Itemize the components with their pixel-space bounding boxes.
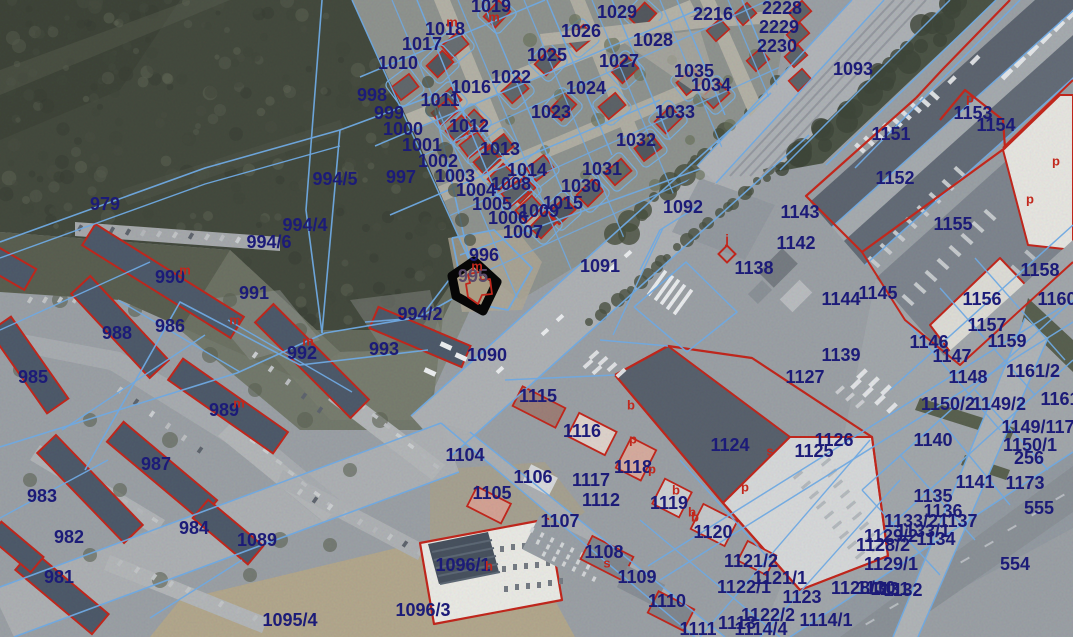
svg-text:998: 998 [357,85,387,105]
svg-text:1112: 1112 [582,490,620,510]
svg-text:981: 981 [44,567,74,587]
svg-text:1118: 1118 [614,457,652,477]
svg-text:1116: 1116 [563,421,601,441]
svg-text:1142: 1142 [776,233,815,253]
svg-text:1129/1: 1129/1 [864,554,918,574]
svg-text:1096/1: 1096/1 [435,555,490,575]
svg-text:555: 555 [1024,498,1054,518]
svg-text:1149/117: 1149/117 [1001,417,1073,437]
svg-text:1119: 1119 [650,493,688,513]
svg-text:2216: 2216 [693,4,733,24]
svg-text:988: 988 [102,323,132,343]
svg-text:2230: 2230 [757,36,797,56]
svg-text:1124: 1124 [710,435,749,455]
svg-text:p: p [741,479,749,494]
svg-text:h: h [485,558,493,573]
svg-text:1152: 1152 [875,168,914,188]
svg-text:1092: 1092 [663,197,703,217]
svg-text:1028: 1028 [633,30,673,50]
svg-text:j: j [724,231,729,246]
svg-text:1091: 1091 [580,256,620,276]
svg-text:p: p [1052,153,1060,168]
svg-text:983: 983 [27,486,57,506]
svg-text:1161: 1161 [1040,389,1073,409]
svg-text:1093: 1093 [833,59,873,79]
svg-text:m: m [229,312,241,327]
svg-text:1016: 1016 [451,77,491,97]
svg-text:1140: 1140 [913,430,952,450]
svg-text:1156: 1156 [962,289,1001,309]
svg-text:1143: 1143 [780,202,819,222]
svg-text:1111: 1111 [679,619,716,637]
svg-text:987: 987 [141,454,171,474]
svg-text:1104: 1104 [445,445,484,465]
svg-text:1132: 1132 [883,580,922,600]
svg-text:1033: 1033 [655,102,695,122]
svg-text:m: m [488,9,500,24]
svg-text:1089: 1089 [237,530,277,550]
svg-text:1134: 1134 [916,529,955,549]
svg-text:m: m [302,333,314,348]
svg-text:1007: 1007 [503,222,543,242]
svg-text:1032: 1032 [616,130,656,150]
svg-text:1122/1: 1122/1 [717,577,771,597]
svg-text:985: 985 [18,367,48,387]
svg-text:1155: 1155 [933,214,972,234]
svg-text:1029: 1029 [597,2,637,22]
svg-text:1013: 1013 [480,139,520,159]
svg-text:994/6: 994/6 [246,232,291,252]
svg-text:1017: 1017 [402,34,442,54]
svg-text:1010: 1010 [378,53,418,73]
svg-text:979: 979 [90,194,120,214]
svg-text:1027: 1027 [599,51,639,71]
svg-text:1110: 1110 [648,591,686,611]
svg-text:984: 984 [179,518,209,538]
svg-text:994/5: 994/5 [312,169,357,189]
svg-text:1022: 1022 [491,67,531,87]
svg-text:m: m [471,258,483,273]
svg-text:1024: 1024 [566,78,606,98]
svg-text:1160: 1160 [1037,289,1073,309]
svg-text:m: m [233,395,245,410]
svg-text:1109: 1109 [617,567,656,587]
svg-text:1095/4: 1095/4 [262,610,317,630]
svg-text:p: p [1026,191,1034,206]
svg-text:1012: 1012 [449,116,489,136]
svg-text:1025: 1025 [527,45,567,65]
svg-text:1144: 1144 [821,289,860,309]
svg-text:1159: 1159 [987,331,1026,351]
svg-text:1115: 1115 [519,386,557,406]
svg-text:256: 256 [1014,448,1044,468]
svg-text:1034: 1034 [691,75,731,95]
svg-text:b: b [672,482,680,497]
svg-text:1105: 1105 [472,483,511,503]
svg-text:1158: 1158 [1020,260,1059,280]
svg-text:1126: 1126 [814,430,853,450]
svg-text:2229: 2229 [759,17,799,37]
svg-text:1127: 1127 [785,367,824,387]
svg-text:1117: 1117 [572,470,610,490]
svg-text:1096/3: 1096/3 [395,600,450,620]
svg-text:s: s [766,443,773,458]
svg-text:p: p [966,90,974,105]
svg-text:997: 997 [386,167,416,187]
svg-text:m: m [179,262,191,277]
svg-text:1008: 1008 [491,174,531,194]
svg-text:1145: 1145 [858,283,897,303]
svg-text:1106: 1106 [513,467,552,487]
svg-text:1148: 1148 [948,367,987,387]
svg-text:p: p [648,461,656,476]
svg-text:1154: 1154 [976,115,1015,135]
svg-text:1150/2: 1150/2 [921,394,975,414]
svg-text:1151: 1151 [871,124,910,144]
svg-text:982: 982 [54,527,84,547]
svg-text:986: 986 [155,316,185,336]
svg-text:554: 554 [1000,554,1030,574]
svg-text:1129/2: 1129/2 [864,526,918,546]
svg-text:1161/2: 1161/2 [1006,361,1060,381]
svg-text:1107: 1107 [540,511,579,531]
svg-text:1149/2: 1149/2 [972,394,1026,414]
svg-text:p: p [629,431,637,446]
svg-text:m: m [446,14,458,29]
svg-text:993: 993 [369,339,399,359]
svg-text:2228: 2228 [762,0,802,18]
svg-text:994/2: 994/2 [397,304,442,324]
svg-text:1114/1: 1114/1 [799,610,852,630]
svg-text:991: 991 [239,283,269,303]
svg-text:b: b [627,397,635,412]
svg-text:1138: 1138 [734,258,773,278]
svg-text:b: b [688,504,696,519]
svg-text:1173: 1173 [1005,473,1044,493]
svg-text:1147: 1147 [932,346,971,366]
svg-text:1023: 1023 [531,102,571,122]
svg-text:s: s [603,555,610,570]
svg-text:1113: 1113 [718,613,756,633]
svg-text:1123: 1123 [782,587,821,607]
svg-text:1141: 1141 [955,472,994,492]
svg-text:1120: 1120 [693,522,732,542]
svg-text:1090: 1090 [467,345,507,365]
svg-text:1009: 1009 [519,201,559,221]
svg-text:1026: 1026 [561,21,601,41]
svg-text:1139: 1139 [821,345,860,365]
